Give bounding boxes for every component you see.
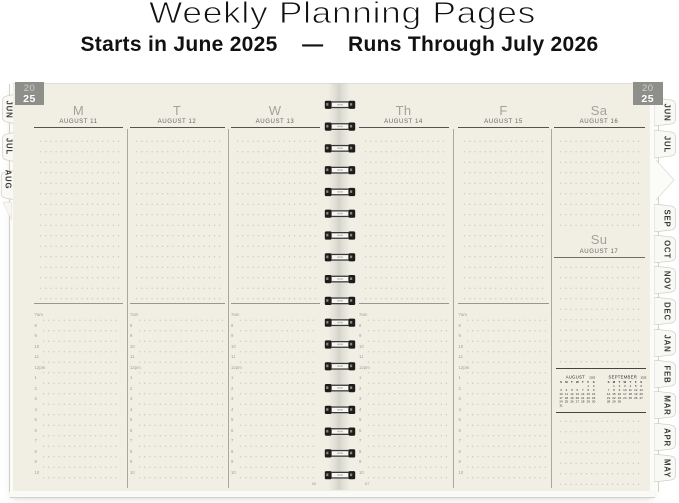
svg-text:30: 30 xyxy=(618,400,622,404)
svg-text:2025: 2025 xyxy=(641,376,647,380)
svg-text:28: 28 xyxy=(607,400,611,404)
svg-text:27: 27 xyxy=(576,400,580,404)
svg-text:W: W xyxy=(576,380,579,384)
svg-text:T: T xyxy=(582,380,584,384)
svg-text:AUGUST: AUGUST xyxy=(566,375,585,380)
svg-text:SEPTEMBER: SEPTEMBER xyxy=(609,375,638,380)
svg-text:2025: 2025 xyxy=(589,376,595,380)
svg-text:26: 26 xyxy=(634,396,638,400)
svg-text:T: T xyxy=(571,380,573,384)
svg-text:29: 29 xyxy=(612,400,616,404)
svg-text:26: 26 xyxy=(570,400,574,404)
svg-text:28: 28 xyxy=(581,400,585,404)
svg-text:S: S xyxy=(608,380,610,384)
svg-text:31: 31 xyxy=(559,404,563,408)
svg-text:S: S xyxy=(560,380,562,384)
svg-text:30: 30 xyxy=(592,400,596,404)
svg-text:M: M xyxy=(565,380,568,384)
svg-text:24: 24 xyxy=(623,396,627,400)
svg-text:29: 29 xyxy=(587,400,591,404)
svg-text:27: 27 xyxy=(640,396,644,400)
svg-text:25: 25 xyxy=(629,396,633,400)
svg-text:25: 25 xyxy=(565,400,569,404)
